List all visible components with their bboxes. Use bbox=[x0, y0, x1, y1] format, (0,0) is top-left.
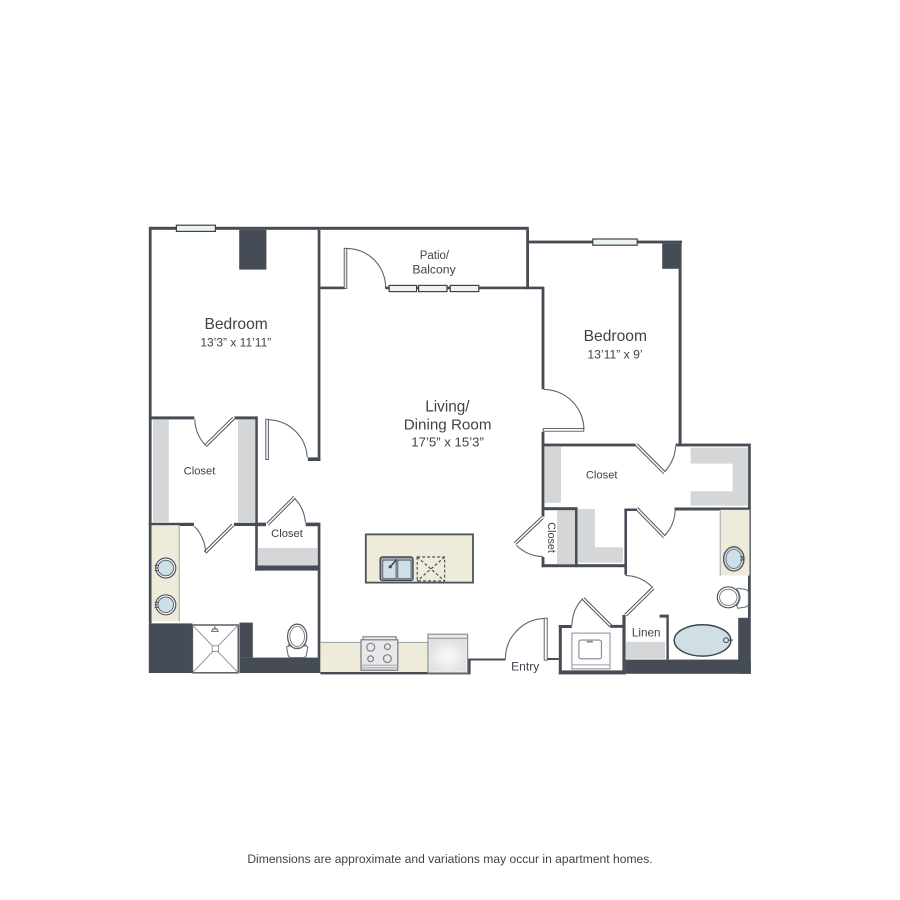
svg-text:Entry: Entry bbox=[511, 660, 540, 674]
svg-text:13’11” x 9’: 13’11” x 9’ bbox=[587, 348, 642, 362]
svg-text:Closet: Closet bbox=[184, 465, 217, 477]
svg-text:17’5” x 15’3”: 17’5” x 15’3” bbox=[411, 435, 484, 450]
svg-text:Closet: Closet bbox=[586, 469, 619, 481]
svg-text:Living/: Living/ bbox=[425, 399, 470, 416]
svg-text:Bedroom: Bedroom bbox=[204, 316, 267, 333]
svg-text:Bedroom: Bedroom bbox=[584, 328, 647, 345]
svg-text:Dimensions are approximate and: Dimensions are approximate and variation… bbox=[247, 852, 652, 866]
svg-text:Closet: Closet bbox=[271, 528, 304, 540]
svg-text:Balcony: Balcony bbox=[412, 263, 456, 277]
svg-text:Linen: Linen bbox=[632, 626, 661, 639]
svg-text:Dining Room: Dining Room bbox=[404, 417, 492, 434]
svg-text:13’3” x 11’11”: 13’3” x 11’11” bbox=[200, 335, 271, 349]
svg-text:Closet: Closet bbox=[545, 522, 557, 553]
svg-text:Patio/: Patio/ bbox=[420, 250, 450, 262]
